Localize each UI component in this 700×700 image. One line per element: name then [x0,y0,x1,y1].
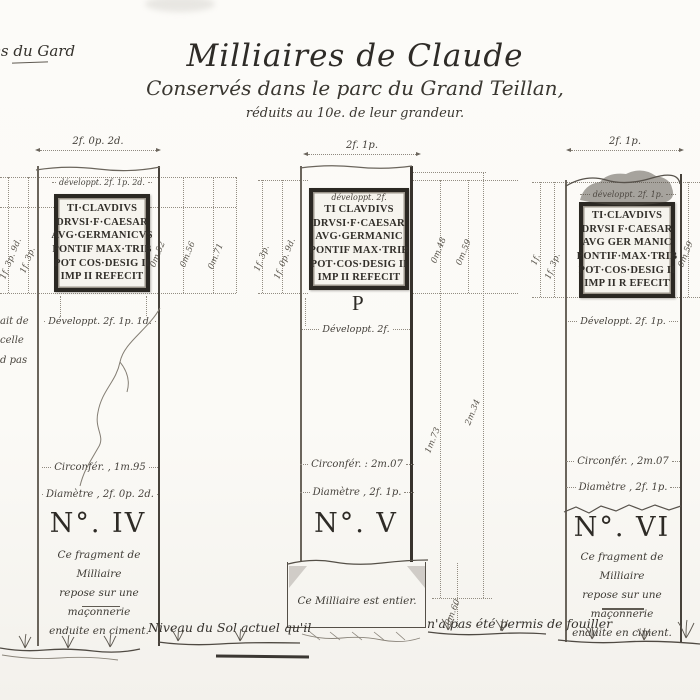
inscription-line: DRVSI·F·CAESAR [56,216,148,230]
dim-dots [42,494,43,495]
inscription-line: TI·CLAVDIVS [67,202,137,216]
page-title: Milliaires de Claude [175,38,535,74]
dim-dots [571,150,679,151]
dim-arrow-right [416,152,421,156]
dim-value: 0m.56 [178,240,197,269]
dim-dots [568,321,577,322]
dim-value: 1f. 3p. [543,252,562,281]
plaque-sub-letter: P [352,291,364,316]
dim-value: 2m.34 [463,398,482,427]
dim-line [60,296,61,316]
dim-line [566,148,684,152]
dim-arrow-right [679,148,684,152]
dim-line [236,177,237,293]
inscription-line: POT·COS·DESIG II [311,258,408,272]
milestone-iv-top-edge [36,167,160,171]
inscription-line: DRVSI·F·CAESAR [313,217,405,231]
dim-dots [666,194,676,195]
col1-circumference: Circonfér. , 1m.95 [42,462,158,473]
dim-dots [580,194,590,195]
dim-value: développt. 2f. 1p. [593,190,664,199]
col3-diameter: Diamètre , 2f. 1p. [566,482,680,493]
dim-value: 1f. 3p. [252,244,271,273]
dim-value: 1f. 0p. 9d. [272,237,298,281]
note-line: Ce fragment de Milliaire [36,546,162,584]
note-line: Ce Milliaire est entier. [292,592,422,611]
col2-circumference: Circonfér. : 2m.07 [300,459,414,470]
note-line: Ce fragment de Milliaire [558,548,686,586]
milestone-v-top-edge [300,166,412,169]
dim-dots [300,492,310,493]
dim-dots [40,150,156,151]
inscription-line: AVG·GERMANIC [315,230,402,244]
dim-dots [404,492,414,493]
dim-line [213,177,214,293]
corner-note: es du Gard [0,42,75,60]
dim-line [150,207,236,208]
dim-dots [669,321,678,322]
corner-note-underline [12,61,48,63]
note-underline [602,608,644,610]
dim-line [305,298,306,326]
col1-plaque-developpement: développt. 2f. 1p. 2d. [52,178,152,187]
dim-line [35,148,161,152]
inscription-line: AVG GER MANIC [582,236,671,250]
circumference-value: Circonfér. : 2m.07 [311,459,403,470]
dim-value: 0m.71 [206,242,225,271]
dim-value: 0m.48 [429,236,448,265]
dim-dots [157,494,158,495]
dim-line [483,172,484,598]
dim-dots [52,182,56,183]
note-underline [82,606,120,607]
dim-line [410,180,518,181]
broken-top-mass [580,170,673,205]
dim-line [412,172,486,173]
col2-diameter: Diamètre , 2f. 1p. [300,487,414,498]
dim-dots [308,154,416,155]
dim-dots [149,467,158,468]
margin-fragment: ait de [0,316,29,327]
diameter-value: Diamètre , 2f. 1p. [313,487,402,498]
dim-value: Développt. 2f. 1p. [580,316,665,327]
dim-dots [300,464,308,465]
dim-dots [302,329,319,330]
milestone-v-right-edge [410,166,413,562]
diameter-value: Diamètre , 2f. 1p. [579,482,668,493]
col1-diameter: Diamètre , 2f. 0p. 2d. [42,489,158,500]
dim-line [303,152,421,156]
dim-dots [42,467,51,468]
scanned-plate: es du Gard Milliaires de Claude Conservé… [0,0,700,700]
col1-top-dim-value: 2f. 0p. 2d. [35,136,161,147]
inscription-plaque-v: développt. 2f. TI CLAVDIVS DRVSI·F·CAESA… [309,188,409,290]
diameter-value: Diamètre , 2f. 0p. 2d. [46,489,154,500]
milestone-vi-top-edge [566,175,680,186]
dim-dots [44,321,45,322]
inscription-plaque-iv: TI·CLAVDIVS DRVSI·F·CAESAR AVG·GERMANICV… [54,194,150,292]
dim-value: Développt. 2f. [322,324,389,335]
col2-note: Ce Milliaire est entier. [292,592,422,611]
col2-shaft-developpement: Développt. 2f. [302,324,410,335]
milestone-number-iv: N°. IV [48,508,148,539]
inscription-plaque-vi: TI·CLAVDIVS DRVSI F·CAESAR AVG GER MANIC… [579,202,675,298]
dim-value: développt. 2f. 1p. 2d. [59,178,145,187]
dim-dots [566,487,576,488]
dim-line [0,293,236,294]
dim-line [146,296,147,316]
note-line: enduite en ciment. [36,622,162,641]
dim-dots [406,464,414,465]
dim-line [432,598,492,599]
dim-dots [670,487,680,488]
inscription-line: POT COS·DESIG II [54,257,150,271]
dim-value: 1f. 3p. [18,246,37,275]
inscription-line: TI CLAVDIVS [324,203,393,217]
milestone-v-left-edge [300,166,302,562]
scale-note: réduits au 10e. de leur grandeur. [230,106,480,121]
col3-plaque-developpement: développt. 2f. 1p. [580,190,676,199]
inscription-line: TI·CLAVDIVS [592,209,662,223]
col1-top-dimension: 2f. 0p. 2d. [35,136,161,152]
dim-dots [155,321,156,322]
col1-shaft-developpement: Développt. 2f. 1p. 1d. [44,316,156,327]
dim-dots [393,329,410,330]
inscription-line: POT·COS·DESIG II [579,264,676,278]
inscription-line: PONTIF·MAX·TRIB [577,250,677,264]
dim-line [554,182,555,297]
dim-arrow-right [156,148,161,152]
dim-dots [566,461,574,462]
crack-line [80,308,160,486]
inscription-line: IMP II REFECIT [61,270,144,284]
dim-line [410,293,518,294]
margin-fragment: d pas [0,355,27,366]
dim-line [540,182,541,297]
milestone-number-vi: N°. VI [572,512,672,543]
col3-top-dimension: 2f. 1p. [566,136,684,152]
col2-top-dimension: 2f. 1p. [303,140,421,156]
ground-note-left: Niveau du Sol actuel qu'il [148,620,311,635]
col1-note: Ce fragment de Milliaire repose sur une … [36,546,162,641]
col2-plaque-developpement: développt. 2f. [331,193,386,202]
inscription-line: PONTIF MAX·TRIB [52,243,151,257]
inscription-line: AVG·GERMANICVS [51,229,152,243]
dim-line [183,177,184,293]
dim-line [688,182,689,297]
col3-top-dim-value: 2f. 1p. [566,136,684,147]
rubble-hatch [310,632,405,640]
inscription-line: IMP II R EFECIT [584,277,670,291]
col2-top-dim-value: 2f. 1p. [303,140,421,151]
col3-shaft-developpement: Développt. 2f. 1p. [568,316,678,327]
inscription-line: PONTIF MAX·TRIB [309,244,408,258]
note-line: repose sur une maçonnerie [36,584,162,622]
dim-value: Développt. 2f. 1p. 1d. [48,316,152,327]
dim-value: 0m.59 [454,238,473,267]
dim-dots [148,182,152,183]
dark-ground-stroke [216,656,309,657]
page-subtitle: Conservés dans le parc du Grand Teillan, [145,76,565,100]
dim-line [28,177,29,293]
scan-smudge [145,0,215,12]
ground-note-right: n'a pas été permis de fouiller [427,616,612,631]
margin-fragment: celle [0,335,24,346]
circumference-value: Circonfér. , 2m.07 [577,456,668,467]
inscription-line: DRVSI F·CAESAR [582,223,673,237]
dim-value: 1f. 3p. 9d. [0,237,24,281]
inscription-line: IMP II REFECIT [318,271,401,285]
milestone-number-v: N°. V [306,508,406,539]
dim-line [468,180,469,293]
dim-dots [672,461,680,462]
circumference-value: Circonfér. , 1m.95 [54,462,145,473]
col3-circumference: Circonfér. , 2m.07 [566,456,680,467]
dim-line [532,182,700,183]
dim-line [262,180,263,293]
